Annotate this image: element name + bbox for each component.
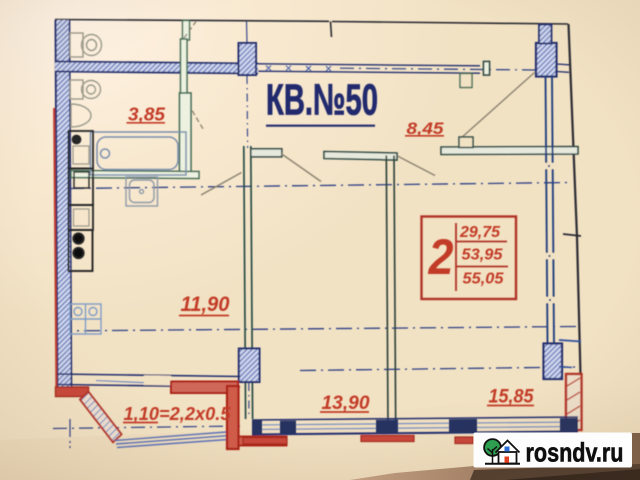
svg-text:rosndv.ru: rosndv.ru xyxy=(526,438,624,468)
